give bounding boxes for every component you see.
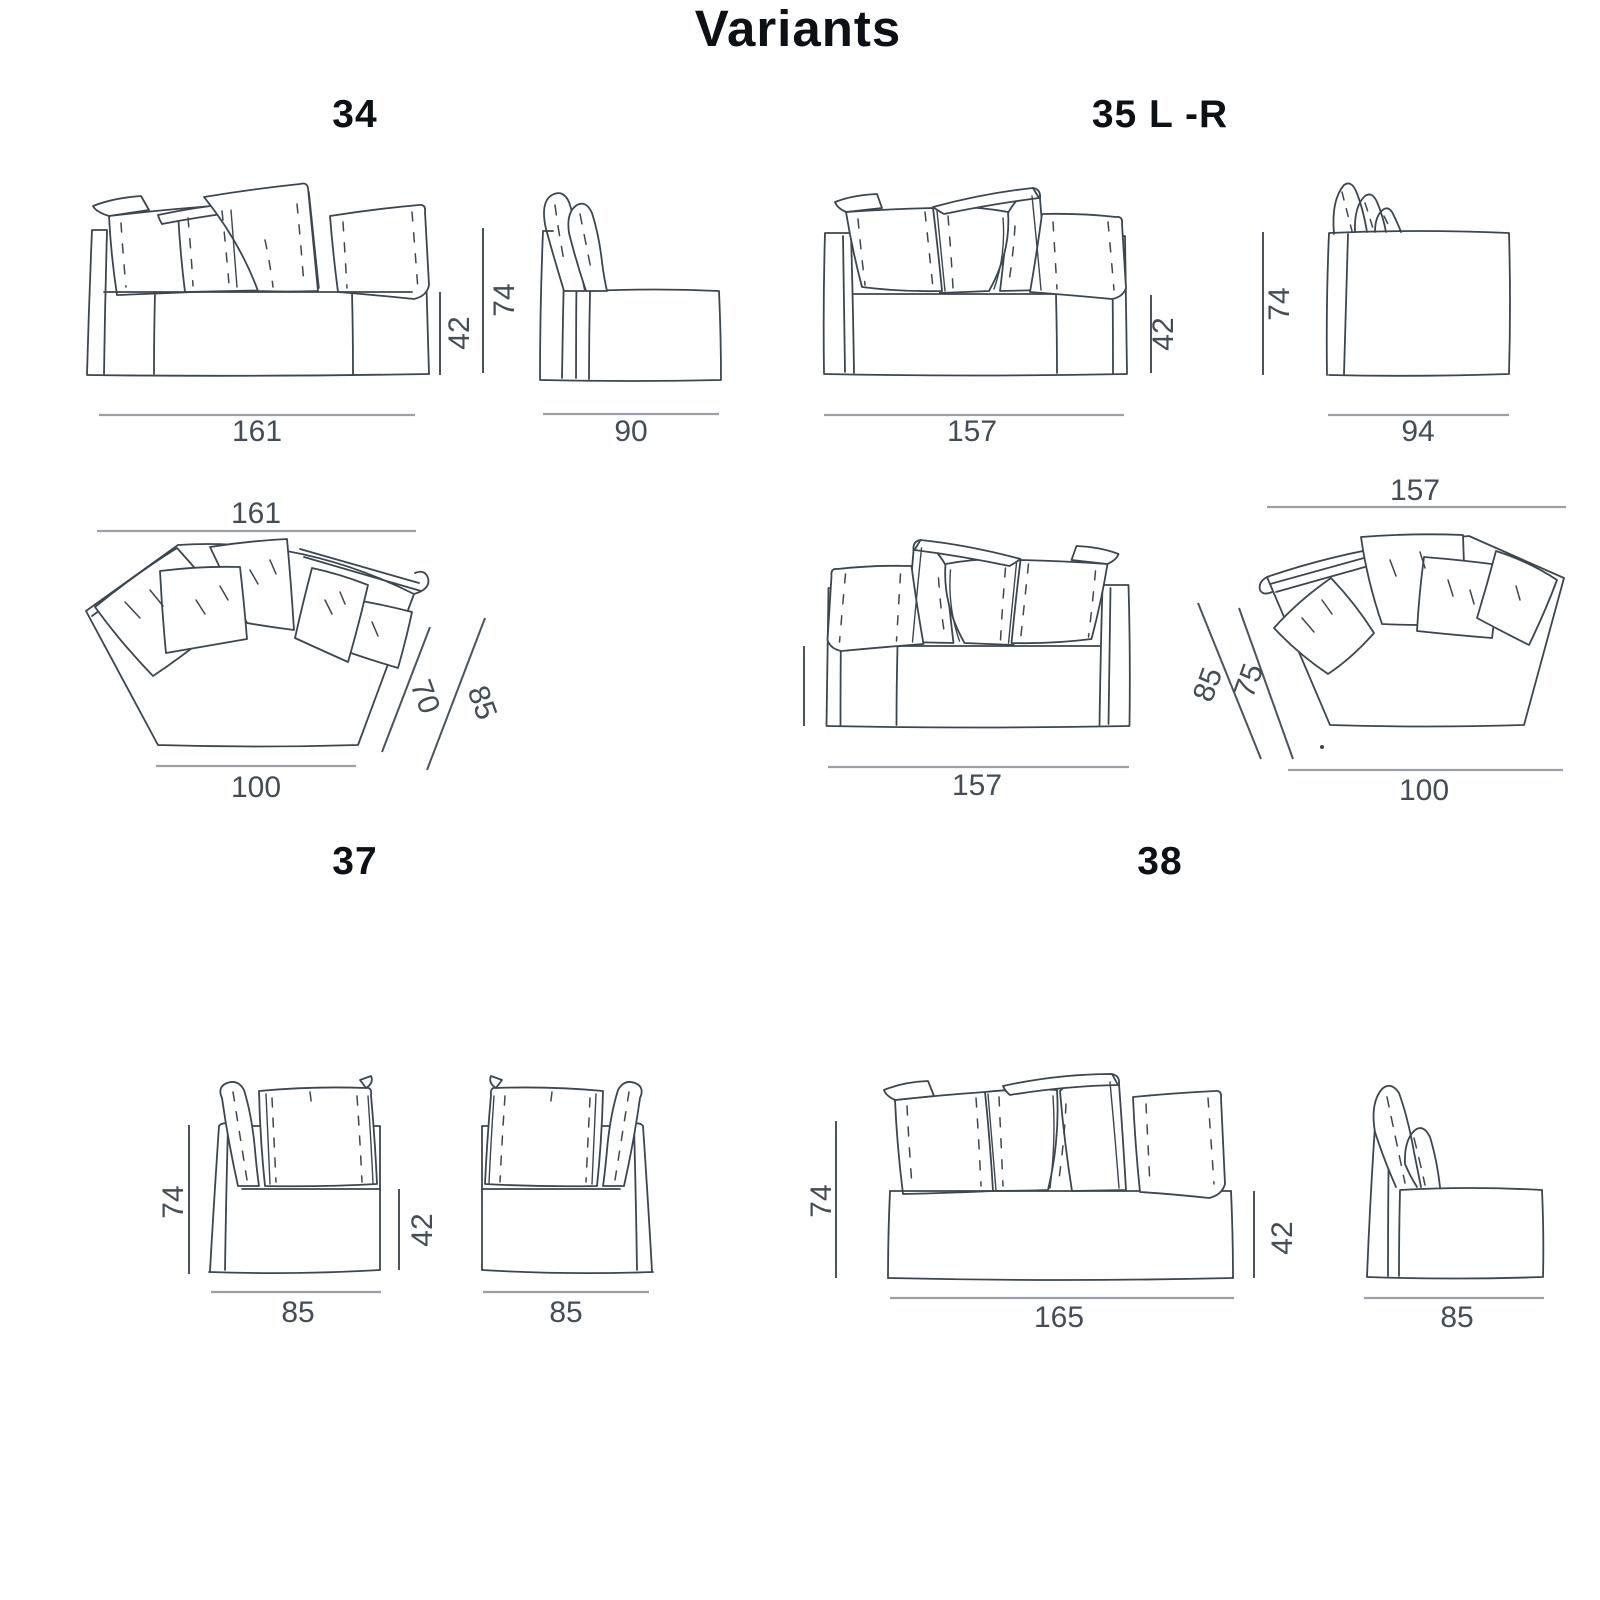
svg-text:74: 74 — [157, 1185, 190, 1218]
svg-text:74: 74 — [805, 1184, 838, 1217]
svg-text:90: 90 — [614, 415, 647, 448]
svg-text:38: 38 — [1137, 840, 1182, 883]
svg-text:34: 34 — [332, 93, 377, 136]
svg-text:85: 85 — [549, 1296, 582, 1329]
svg-text:42: 42 — [1266, 1221, 1299, 1254]
svg-text:100: 100 — [1399, 774, 1449, 807]
svg-text:157: 157 — [952, 769, 1002, 802]
svg-text:85: 85 — [461, 681, 503, 724]
svg-text:100: 100 — [231, 771, 281, 804]
svg-text:75: 75 — [1228, 659, 1270, 702]
svg-text:42: 42 — [406, 1213, 439, 1246]
svg-text:161: 161 — [231, 497, 281, 530]
svg-text:42: 42 — [443, 316, 476, 349]
svg-text:85: 85 — [1187, 663, 1229, 706]
svg-text:Variants: Variants — [695, 0, 901, 57]
svg-text:161: 161 — [232, 415, 282, 448]
svg-text:85: 85 — [281, 1296, 314, 1329]
svg-text:157: 157 — [1390, 474, 1440, 507]
svg-text:85: 85 — [1440, 1301, 1473, 1334]
svg-text:94: 94 — [1401, 415, 1434, 448]
svg-text:35 L -R: 35 L -R — [1092, 93, 1228, 136]
svg-text:37: 37 — [332, 840, 377, 883]
svg-text:157: 157 — [947, 415, 997, 448]
svg-text:42: 42 — [1147, 317, 1180, 350]
svg-text:165: 165 — [1034, 1301, 1084, 1334]
svg-text:74: 74 — [1263, 287, 1296, 320]
svg-text:70: 70 — [404, 675, 446, 718]
svg-text:74: 74 — [488, 283, 521, 316]
